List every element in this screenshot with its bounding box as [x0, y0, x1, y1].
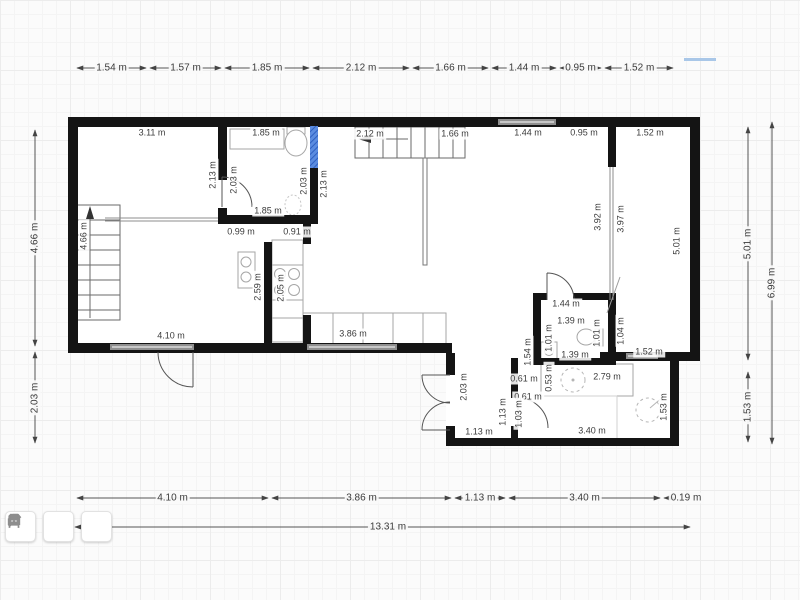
wc-toilet[interactable]	[577, 329, 603, 346]
stove-burner	[275, 285, 286, 296]
wall[interactable]	[446, 426, 455, 440]
bathtub-cabinet[interactable]	[230, 129, 284, 149]
wall[interactable]	[446, 353, 455, 375]
corridor-sink[interactable]	[238, 252, 255, 288]
wall[interactable]	[511, 426, 518, 440]
wall[interactable]	[303, 224, 311, 244]
wall[interactable]	[68, 117, 78, 353]
floor-area[interactable]	[68, 117, 700, 446]
floorplan-canvas[interactable]: 3.11 m1.85 m2.12 m1.66 m1.44 m0.95 m1.52…	[0, 0, 800, 600]
wall[interactable]	[608, 117, 616, 167]
wall[interactable]	[533, 358, 616, 365]
furniture-tool-button[interactable]	[81, 511, 112, 542]
wall[interactable]	[690, 117, 700, 361]
window[interactable]	[110, 344, 194, 350]
window[interactable]	[498, 119, 556, 125]
double-door-leaf[interactable]	[422, 375, 450, 403]
wall[interactable]	[264, 242, 272, 346]
wall[interactable]	[670, 361, 679, 441]
wall[interactable]	[303, 315, 311, 346]
stove-burner	[289, 269, 300, 280]
ruler-highlight	[684, 58, 716, 61]
armchair-icon	[5, 511, 23, 529]
wall[interactable]	[511, 358, 518, 398]
double-door-leaf[interactable]	[422, 402, 450, 430]
wall[interactable]	[608, 300, 616, 361]
wall[interactable]	[218, 117, 227, 180]
kitchen-cabinets[interactable]	[272, 240, 303, 342]
selected-wall-highlight[interactable]	[310, 126, 318, 168]
stair-railing[interactable]	[423, 158, 427, 265]
wall[interactable]	[68, 117, 700, 127]
stove-burner	[275, 269, 286, 280]
shower-tray[interactable]	[541, 364, 633, 396]
window[interactable]	[307, 344, 397, 350]
window[interactable]	[626, 353, 658, 359]
surfaces-tool-button[interactable]	[43, 511, 74, 542]
wc-sink[interactable]	[541, 342, 557, 359]
staircase-top[interactable]	[355, 127, 465, 158]
door[interactable]	[158, 352, 193, 387]
wall[interactable]	[218, 215, 318, 224]
wall[interactable]	[446, 438, 679, 446]
wall[interactable]	[533, 293, 541, 361]
toolbar	[5, 511, 112, 542]
wall[interactable]	[533, 293, 547, 300]
stove-burner	[289, 285, 300, 296]
kitchen-counter[interactable]	[303, 313, 446, 345]
pedestal-sink[interactable]	[285, 127, 307, 156]
staircase-left[interactable]	[74, 205, 120, 320]
